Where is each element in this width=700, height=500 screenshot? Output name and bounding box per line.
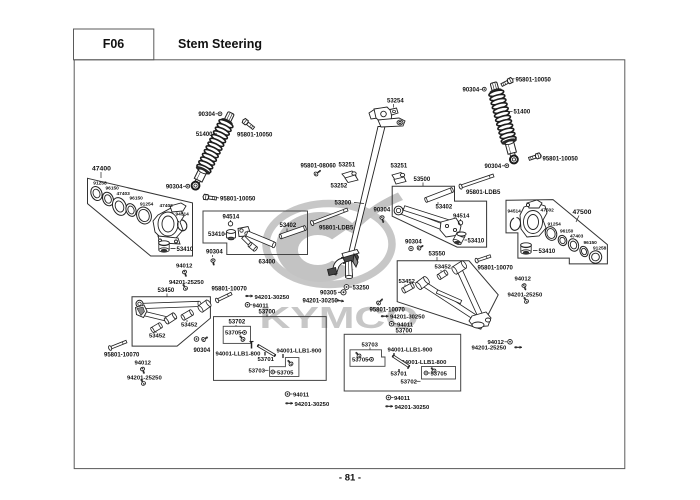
svg-text:94514: 94514 — [453, 214, 470, 220]
svg-text:53410: 53410 — [468, 239, 485, 245]
svg-text:95801-10050: 95801-10050 — [516, 78, 552, 84]
svg-text:53702: 53702 — [401, 380, 418, 386]
svg-text:96150: 96150 — [584, 240, 598, 246]
svg-text:94011: 94011 — [253, 303, 270, 309]
svg-text:53250: 53250 — [353, 286, 370, 292]
svg-text:53705: 53705 — [277, 371, 294, 377]
svg-text:95801-10070: 95801-10070 — [370, 308, 406, 314]
svg-text:94011: 94011 — [397, 322, 414, 328]
svg-text:47403: 47403 — [117, 191, 131, 197]
svg-text:95801-10050: 95801-10050 — [543, 157, 579, 163]
svg-text:94201-30250: 94201-30250 — [303, 299, 339, 305]
svg-text:63400: 63400 — [259, 260, 276, 266]
svg-text:53410: 53410 — [208, 232, 225, 238]
svg-text:94514: 94514 — [176, 212, 190, 218]
svg-text:91254: 91254 — [140, 202, 154, 208]
svg-text:90304: 90304 — [198, 112, 215, 118]
svg-text:47402: 47402 — [160, 203, 174, 209]
svg-text:53705: 53705 — [352, 358, 369, 364]
svg-text:94001-LLB1-900: 94001-LLB1-900 — [388, 348, 434, 354]
svg-text:Stem Steering: Stem Steering — [178, 37, 262, 51]
svg-text:53701: 53701 — [391, 372, 408, 378]
svg-text:53705: 53705 — [225, 331, 242, 337]
svg-text:47500: 47500 — [573, 209, 592, 216]
svg-text:94001-LLB1-900: 94001-LLB1-900 — [277, 349, 323, 355]
svg-text:95801-LDB5: 95801-LDB5 — [319, 226, 354, 232]
svg-text:53402: 53402 — [280, 223, 297, 229]
svg-text:53701: 53701 — [258, 357, 275, 363]
svg-text:90304: 90304 — [485, 164, 502, 170]
svg-text:95801-10050: 95801-10050 — [220, 197, 256, 203]
svg-text:- 81 -: - 81 - — [339, 473, 361, 484]
svg-text:90304: 90304 — [374, 208, 391, 214]
svg-text:53452: 53452 — [149, 334, 166, 340]
svg-text:53500: 53500 — [414, 177, 431, 183]
svg-text:94201-30250: 94201-30250 — [395, 405, 430, 411]
svg-text:95801-10050: 95801-10050 — [237, 133, 273, 139]
svg-text:53703: 53703 — [362, 342, 379, 348]
svg-text:47502: 47502 — [541, 208, 555, 214]
svg-text:47400: 47400 — [92, 166, 111, 173]
svg-text:94201-25250: 94201-25250 — [472, 346, 507, 352]
svg-text:51400: 51400 — [196, 132, 213, 138]
svg-text:94012: 94012 — [176, 264, 193, 270]
svg-text:F06: F06 — [103, 37, 125, 51]
svg-text:90304: 90304 — [166, 185, 183, 191]
svg-text:94514: 94514 — [223, 215, 240, 221]
svg-text:90304: 90304 — [405, 240, 422, 246]
svg-text:51400: 51400 — [514, 110, 531, 116]
svg-text:53252: 53252 — [331, 184, 348, 190]
svg-text:95801-10070: 95801-10070 — [478, 266, 514, 272]
svg-text:53450: 53450 — [158, 288, 175, 294]
svg-text:90304: 90304 — [463, 88, 480, 94]
svg-text:53550: 53550 — [429, 252, 446, 258]
svg-text:53402: 53402 — [436, 205, 453, 211]
svg-text:90304: 90304 — [194, 348, 211, 354]
svg-text:53702: 53702 — [229, 320, 246, 326]
svg-text:95801-LDB5: 95801-LDB5 — [466, 190, 501, 196]
svg-text:94201-25250: 94201-25250 — [127, 376, 162, 382]
svg-text:95801-10070: 95801-10070 — [212, 287, 248, 293]
svg-text:96150: 96150 — [106, 186, 120, 192]
svg-text:53452: 53452 — [181, 323, 198, 329]
svg-text:53251: 53251 — [391, 164, 408, 170]
svg-text:94011: 94011 — [293, 393, 310, 399]
svg-text:94001-LLB1-800: 94001-LLB1-800 — [216, 352, 262, 358]
svg-text:53703: 53703 — [249, 369, 266, 375]
svg-text:94201-30250: 94201-30250 — [255, 295, 290, 301]
svg-text:94201-30250: 94201-30250 — [390, 315, 425, 321]
svg-text:95801-10070: 95801-10070 — [104, 353, 140, 359]
svg-text:53410: 53410 — [539, 249, 556, 255]
svg-text:53254: 53254 — [387, 99, 404, 105]
svg-text:90305: 90305 — [320, 291, 337, 297]
svg-text:95801-08060: 95801-08060 — [301, 164, 337, 170]
svg-text:94012: 94012 — [135, 361, 152, 367]
svg-text:94514: 94514 — [508, 209, 522, 215]
svg-text:53452: 53452 — [435, 265, 452, 271]
svg-text:94201-25250: 94201-25250 — [169, 280, 204, 286]
svg-text:96150: 96150 — [130, 196, 144, 202]
svg-text:53200: 53200 — [335, 201, 352, 207]
svg-text:94201-30250: 94201-30250 — [295, 402, 330, 408]
svg-text:53251: 53251 — [339, 163, 356, 169]
svg-text:94011: 94011 — [394, 396, 411, 402]
svg-text:90304: 90304 — [206, 250, 223, 256]
svg-text:94012: 94012 — [515, 277, 532, 283]
svg-text:53410: 53410 — [177, 247, 194, 253]
